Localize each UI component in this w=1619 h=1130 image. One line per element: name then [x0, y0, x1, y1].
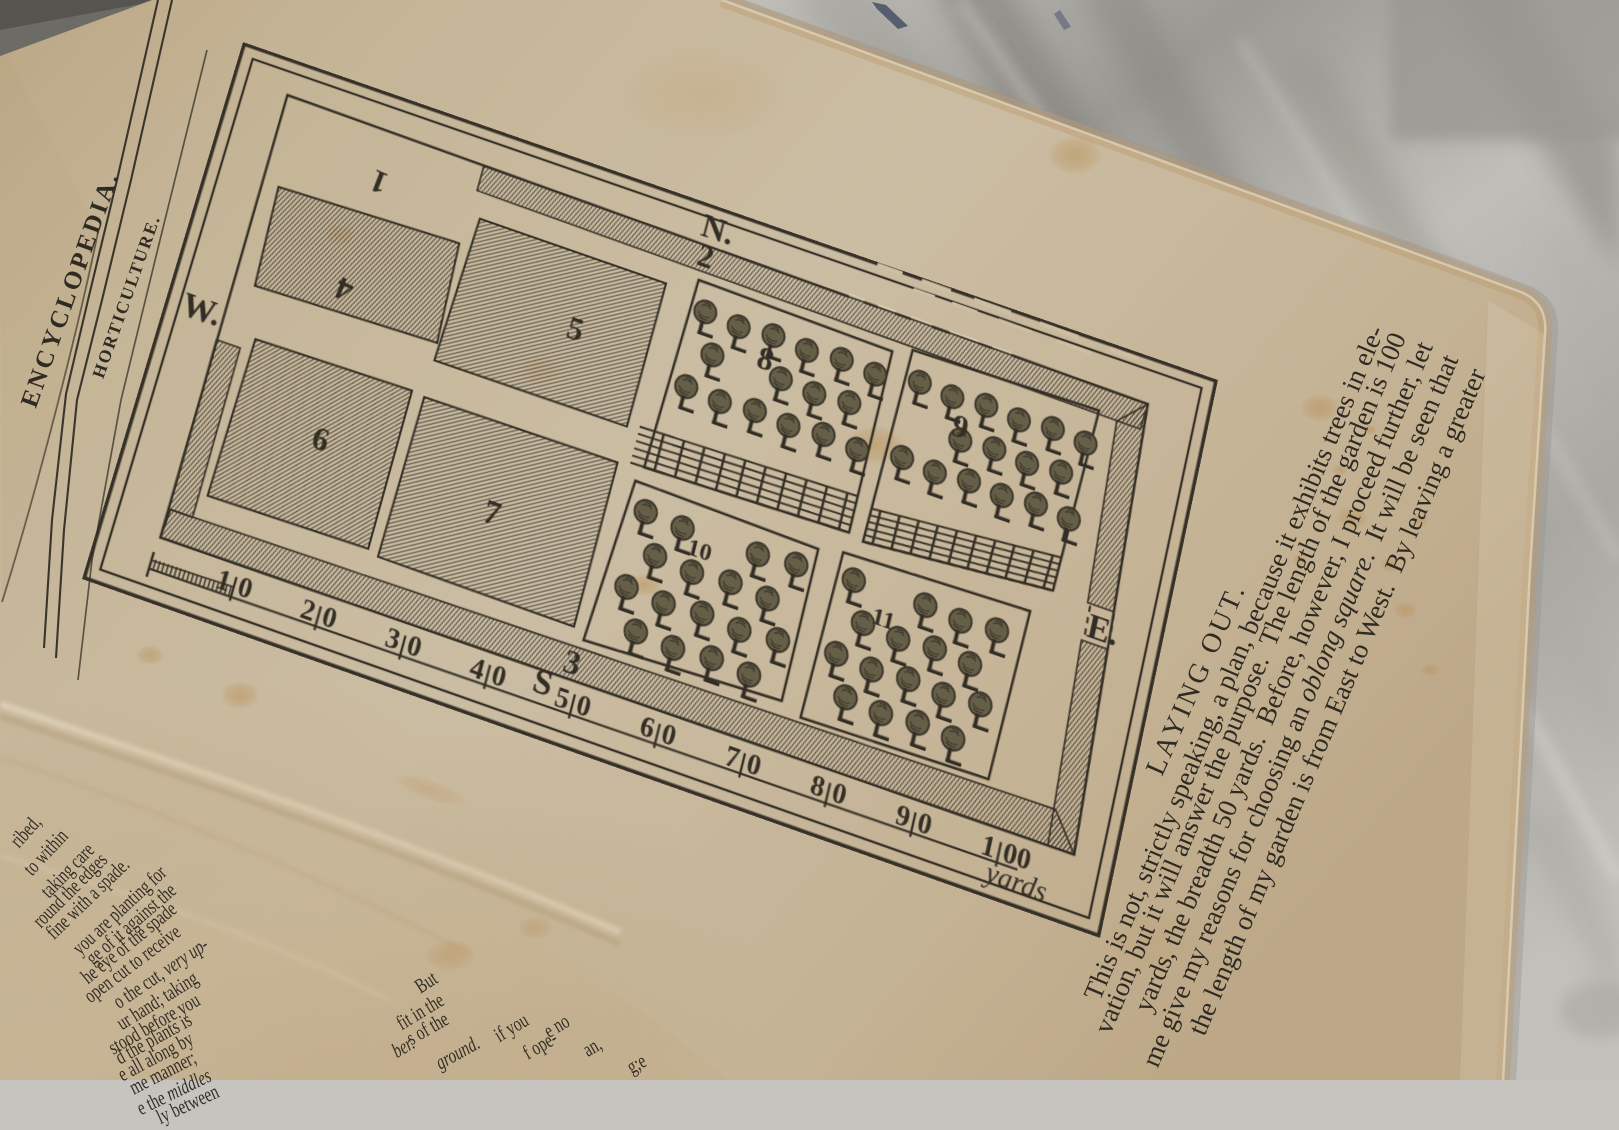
svg-text:7: 7 — [722, 739, 743, 775]
svg-text:0: 0 — [403, 629, 425, 665]
svg-text:0: 0 — [743, 746, 764, 782]
svg-text:0: 0 — [829, 776, 850, 812]
svg-text:1: 1 — [365, 162, 393, 201]
svg-text:0: 0 — [234, 570, 256, 606]
svg-text:W.: W. — [177, 286, 225, 335]
svg-text:0: 0 — [319, 599, 341, 635]
svg-text:0: 0 — [658, 717, 679, 753]
svg-text:0: 0 — [914, 805, 935, 842]
svg-text:9: 9 — [893, 798, 914, 834]
svg-text:0: 0 — [573, 687, 595, 723]
svg-text:0: 0 — [488, 658, 510, 694]
svg-text:8: 8 — [807, 768, 828, 804]
